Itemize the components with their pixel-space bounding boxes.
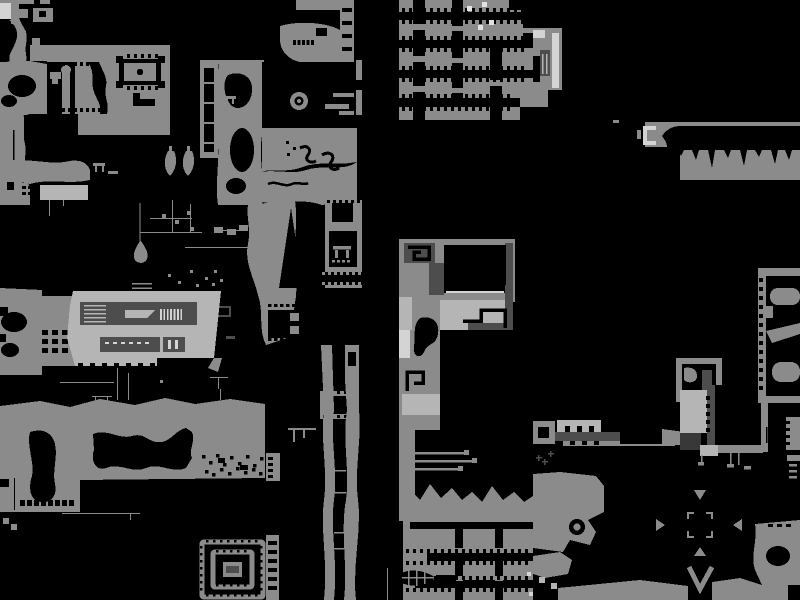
long-corridor-shape-14 [544, 459, 546, 465]
rooms-cluster-mid-shape-5 [335, 250, 338, 258]
long-corridor-shape-8 [620, 430, 662, 444]
left-lower-band-shape-2 [63, 200, 64, 206]
right-lower-facility-shape-23 [787, 455, 800, 461]
tall-right-structure-shape-8 [758, 396, 800, 403]
central-facility-shape-27 [160, 380, 163, 383]
right-lower-facility-shape-14 [738, 453, 740, 465]
upper-left-structure-shape-5 [50, 72, 61, 79]
central-facility [0, 288, 228, 400]
center-lower-complex-shape-3 [415, 468, 459, 471]
upper-left-structure-shape-4 [61, 65, 71, 75]
top-grid-complex-shape-29 [540, 50, 550, 76]
rooms-cluster-mid-shape-4 [333, 246, 351, 250]
tall-right-structure-shape-5 [772, 362, 800, 382]
center-lower-complex-shape-2 [415, 460, 473, 463]
long-corridor-shape-16 [550, 451, 552, 457]
right-wall-band [344, 345, 360, 600]
right-lobe-shape-4 [226, 178, 246, 194]
spiky-hall-shape-10 [613, 120, 619, 123]
spiky-hall-shape-4 [643, 126, 656, 130]
speckle-dots [168, 270, 223, 287]
spiky-hall-shape-6 [766, 132, 789, 134]
top-grid-complex-shape-12 [452, 88, 463, 93]
spiky-hall-shape-9 [637, 130, 641, 139]
3 [22, 192, 38, 195]
bottom-center-corridor-shape-12 [334, 470, 346, 472]
left-wall-band [321, 345, 335, 600]
central-scaffold-details-shape-15 [132, 283, 152, 285]
top-grid-complex-shape-32 [533, 56, 540, 82]
compass-triangle-right [733, 519, 742, 531]
central-facility-shape-2 [1, 343, 19, 357]
bottom-left-landmass [0, 396, 265, 530]
long-corridor [533, 420, 692, 465]
left-edge-mid-shape-0 [0, 112, 26, 164]
right-lower-facility-shape-6 [680, 433, 701, 450]
right-lower-facility-shape-18 [698, 462, 704, 466]
right-lobe-shape-7 [232, 99, 234, 104]
long-corridor-shape-1 [538, 427, 549, 438]
upper-left-structure-shape-6 [52, 79, 58, 84]
9 [50, 108, 101, 112]
bottom-left-landmass-shape-13 [107, 396, 108, 406]
central-facility-shape-26 [220, 389, 221, 400]
light-slab [40, 185, 88, 200]
eye-room-area-shape-11 [325, 104, 349, 109]
top-left-cluster-shape-4 [40, 0, 50, 4]
upper-left-blob [0, 61, 47, 115]
eye-pupil [297, 99, 301, 103]
long-corridor-shape-12 [538, 455, 540, 461]
center-lower-complex-shape-8 [427, 553, 533, 561]
compass-zone-shape-8 [712, 578, 762, 600]
3 [570, 441, 599, 445]
center-lower-complex-shape-7 [410, 522, 533, 529]
central-facility-shape-16 [163, 337, 185, 352]
bracket-bl [688, 531, 694, 537]
central-scaffold-details-shape-6 [185, 247, 261, 248]
central-scaffold-details-shape-5 [162, 211, 194, 231]
right-lower-facility-shape-9 [715, 385, 762, 447]
3 [22, 186, 38, 189]
bottom-center-corridor-shape-5 [293, 430, 295, 442]
bracket-br [706, 531, 712, 537]
central-scaffold-details-shape-11 [214, 230, 248, 231]
left-edge-mid [0, 112, 38, 205]
bottom-center-corridor-shape-6 [303, 430, 305, 438]
left-lower-band-shape-4 [95, 166, 97, 172]
central-complex-shape-13 [399, 330, 410, 358]
right-lower-facility-shape-19 [766, 427, 768, 443]
spiral-room-shape-3 [226, 566, 239, 573]
center-lower-complex [387, 429, 533, 600]
left-lower-band-shape-6 [108, 171, 118, 174]
top-grid-complex-shape-11 [452, 58, 463, 63]
eye-room-area-shape-12 [339, 111, 354, 115]
central-complex-shape-15 [402, 394, 440, 415]
bottom-center-corridor-shape-4 [288, 428, 316, 430]
eye-room-area-shape-10 [333, 93, 354, 97]
v-mark [689, 567, 712, 589]
map-viewer [0, 0, 800, 600]
right-lower-facility-shape-17 [701, 455, 703, 463]
right-lobe-shape-12 [290, 326, 299, 334]
rooms-cluster-mid-shape-1 [332, 203, 353, 222]
leaf-pair-shape-3 [187, 146, 190, 151]
bottom-left-landmass-shape-5 [240, 465, 248, 470]
central-scaffold-details-shape-16 [132, 288, 152, 290]
top-grid-complex-shape-7 [413, 56, 425, 62]
3 [565, 426, 594, 432]
tall-right-structure-shape-3 [770, 288, 800, 305]
central-scaffold-details-shape-9 [227, 229, 236, 235]
compass-triangle-left [656, 519, 665, 531]
window-room [268, 310, 306, 338]
central-facility-shape-3 [0, 307, 8, 316]
eye-room-area-shape-3 [280, 23, 340, 64]
central-scaffold-details-shape-7 [260, 247, 261, 289]
central-complex-shape-11 [399, 297, 412, 330]
bracket-tr [706, 513, 712, 519]
center-lower-complex-shape-27 [387, 568, 388, 600]
spiky-hall-shape-7 [766, 132, 768, 143]
right-lobe-shape-11 [290, 313, 299, 321]
leaf-pair-shape-1 [183, 151, 194, 176]
central-scaffold-details-shape-3 [140, 232, 202, 233]
bottom-left-landmass-shape-4 [218, 458, 225, 463]
compass-triangle-bottom [694, 547, 706, 556]
central-scaffold-details-shape-0 [49, 200, 50, 216]
eye-room-area-shape-19 [356, 60, 362, 80]
compass-zone-shape-10 [766, 546, 790, 566]
left-edge-mid-shape-3 [7, 182, 14, 190]
upper-left-structure-shape-19 [133, 93, 140, 100]
top-left-cluster-shape-6 [39, 11, 46, 17]
tall-right-structure [758, 268, 800, 403]
bottom-left-landmass-shape-1 [29, 431, 56, 503]
bottom-left-landmass-shape-12 [95, 396, 96, 406]
central-facility-shape-14 [100, 337, 160, 352]
top-grid-complex-shape-31 [546, 54, 548, 74]
central-complex-shape-6 [429, 263, 444, 295]
left-lower-band-shape-0 [10, 160, 90, 184]
top-grid-complex-shape-27 [552, 33, 559, 88]
upper-left-structure-shape-18 [133, 99, 155, 106]
right-lower-facility-shape-16 [744, 466, 751, 470]
top-left-cluster-shape-3 [19, 9, 28, 18]
center-lower-complex-shape-1 [415, 452, 465, 455]
central-complex-shape-5 [446, 291, 504, 293]
column-200-shape-1 [204, 68, 214, 152]
right-lower-facility-shape-12 [700, 445, 718, 456]
big-dark-room [444, 245, 506, 293]
bottom-center-corridor-shape-15 [334, 548, 346, 550]
center-lower-complex-shape-21 [436, 575, 456, 581]
upper-left-blob-shape-1 [8, 75, 36, 97]
central-facility-shape-23 [128, 373, 129, 400]
world-map-canvas [0, 0, 800, 600]
central-facility-shape-21 [117, 368, 118, 400]
central-complex [399, 239, 515, 430]
right-lobe-shape-5 [224, 96, 236, 99]
light-block [680, 390, 707, 433]
upper-left-blob-shape-2 [1, 95, 17, 107]
top-grid-complex-shape-16 [523, 28, 533, 33]
upper-left-structure-shape-15 [158, 81, 165, 88]
upper-left-structure-shape-13 [158, 56, 165, 63]
rooms-cluster-mid [320, 200, 362, 288]
compass-zone-shape-12 [788, 585, 800, 600]
eye-room-area-shape-4 [316, 28, 327, 36]
right-lower-facility-shape-15 [727, 464, 734, 468]
screen: { "app": { "background": "#000000", "can… [0, 0, 800, 600]
central-facility-shape-0 [0, 288, 42, 375]
top-grid-complex-shape-30 [542, 54, 544, 74]
right-lobe-shape-6 [226, 99, 228, 104]
top-grid-complex [399, 0, 562, 120]
top-grid-complex-shape-28 [533, 30, 545, 38]
bottom-left-landmass-shape-7 [14, 478, 15, 510]
central-facility-shape-4 [0, 334, 6, 342]
spiral-room [200, 540, 263, 597]
compass-zone-shape-4 [533, 552, 572, 578]
right-lower-facility-shape-13 [730, 453, 732, 465]
eye-room-area-shape-0 [296, 0, 343, 10]
top-grid-complex-shape-6 [413, 24, 425, 30]
leaf-pair-shape-0 [165, 151, 176, 176]
compass-triangle-top [694, 490, 706, 500]
central-facility-shape-25 [218, 377, 219, 389]
droplet [134, 241, 148, 263]
leaf-pair [165, 146, 194, 176]
central-scaffold-details-shape-4 [150, 218, 192, 219]
central-scaffold-details-shape-19 [226, 336, 235, 339]
upper-left-structure-shape-14 [116, 81, 123, 88]
center-lower-complex-shape-9 [415, 580, 533, 588]
central-facility-shape-20 [208, 358, 222, 372]
rooms-cluster-mid-shape-6 [346, 250, 349, 258]
bottom-center-corridor-shape-14 [334, 532, 346, 534]
upper-left-structure-shape-11 [137, 69, 143, 75]
bottom-left-landmass-shape-8 [0, 479, 9, 487]
left-lower-band-shape-3 [93, 163, 105, 166]
eye-room-area [262, 0, 362, 205]
left-lower-band-shape-5 [102, 166, 104, 172]
bottom-center-corridor-shape-11 [348, 352, 356, 366]
3 [768, 524, 791, 527]
tall-right-structure-shape-6 [766, 306, 773, 318]
leaf-pair-shape-2 [169, 146, 172, 151]
right-lobe-shape-3 [230, 128, 254, 172]
central-facility-shape-17 [168, 340, 171, 349]
bottom-left-landmass-shape-11 [130, 514, 131, 520]
top-grid-complex-shape-8 [413, 86, 425, 92]
pillar [62, 72, 70, 114]
bottom-left-landmass-shape-14 [92, 396, 112, 397]
light-corner-block [0, 3, 12, 19]
compass-zone-shape-5 [539, 577, 557, 589]
compass-zone [533, 472, 800, 600]
central-complex-shape-16 [402, 415, 440, 429]
upper-left-structure [30, 45, 170, 135]
compass-zone-shape-6 [558, 580, 688, 600]
spiky-hall-shape-8 [787, 132, 789, 143]
bottom-center-corridor-shape-13 [334, 492, 346, 494]
compass-zone-shape-0 [533, 472, 604, 552]
central-facility-shape-22 [60, 382, 114, 383]
spiky-hall-shape-5 [643, 141, 656, 145]
top-grid-complex-shape-10 [452, 26, 463, 31]
left-edge-mid-shape-2 [13, 130, 15, 160]
bottom-left-landmass-shape-10 [62, 513, 140, 514]
bottom-left-landmass-shape-9 [3, 518, 17, 530]
central-facility-shape-18 [175, 340, 178, 349]
eye-room-area-shape-20 [356, 90, 362, 115]
central-scaffold-details-shape-13 [140, 203, 141, 241]
center-lower-complex-shape-25 [402, 577, 434, 579]
3 [789, 464, 797, 479]
bottom-center-corridor [266, 345, 360, 600]
upper-left-structure-shape-12 [116, 56, 123, 63]
bracket-tl [688, 513, 694, 519]
compass-zone-shape-3 [574, 524, 581, 531]
right-lower-facility-shape-11 [715, 445, 763, 453]
spiky-hall [613, 120, 800, 180]
central-scaffold-details-shape-1 [172, 200, 173, 233]
